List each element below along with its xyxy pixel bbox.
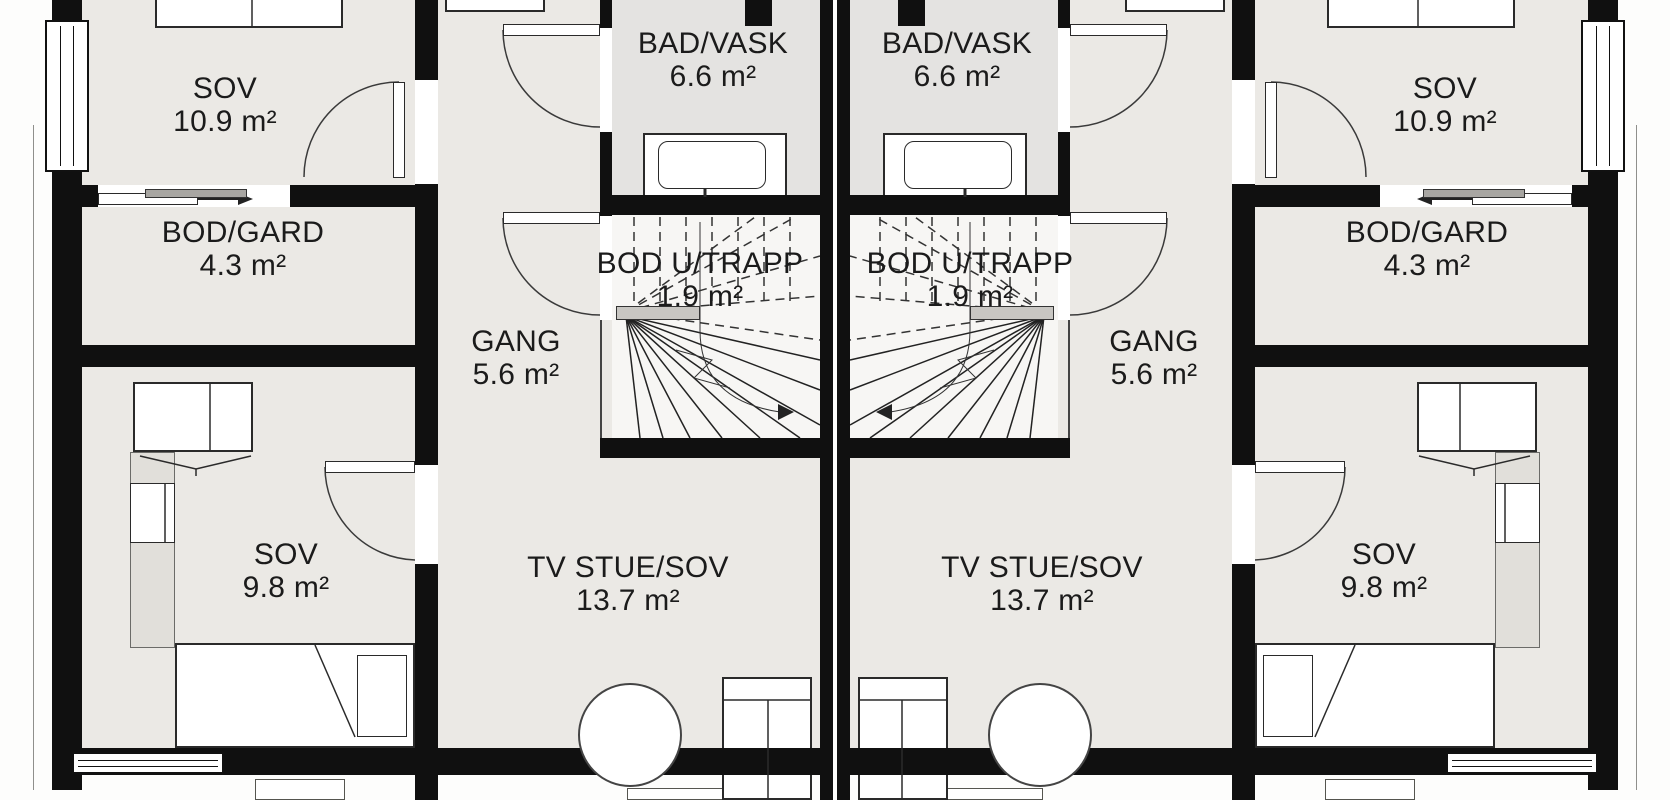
door-leaf (1255, 461, 1345, 473)
floor-plan: SOV 10.9 m² BOD/GARD 4.3 m² BAD/VASK 6.6… (0, 0, 1670, 800)
room-label-sov-top: SOV 10.9 m² (1393, 72, 1497, 138)
room-name: BOD/GARD (162, 216, 324, 249)
room-name: BOD U/TRAPP (867, 247, 1074, 280)
room-area: 13.7 m² (941, 584, 1143, 617)
room-label-bad-vask: BAD/VASK 6.6 m² (638, 27, 788, 93)
room-label-tv-stue: TV STUE/SOV 13.7 m² (527, 551, 729, 617)
room-area: 6.6 m² (882, 60, 1032, 93)
room-label-bod-gard: BOD/GARD 4.3 m² (1346, 216, 1508, 282)
room-name: SOV (1341, 538, 1428, 571)
room-label-bod-u-trapp: BOD U/TRAPP 1.9 m² (597, 247, 804, 313)
room-area: 4.3 m² (162, 249, 324, 282)
room-area: 5.6 m² (471, 358, 561, 391)
blanket-fold-line (1315, 645, 1355, 737)
room-area: 5.6 m² (1109, 358, 1199, 391)
room-area: 9.8 m² (1341, 571, 1428, 604)
furniture-detail-graphics (0, 0, 835, 800)
room-label-sov-top: SOV 10.9 m² (173, 72, 277, 138)
room-label-bod-u-trapp: BOD U/TRAPP 1.9 m² (867, 247, 1074, 313)
room-label-bad-vask: BAD/VASK 6.6 m² (882, 27, 1032, 93)
room-label-bod-gard: BOD/GARD 4.3 m² (162, 216, 324, 282)
furniture-detail-graphics (835, 0, 1670, 800)
room-area: 4.3 m² (1346, 249, 1508, 282)
wardrobe-hanger-symbol (1419, 456, 1530, 469)
blanket-fold-line (315, 645, 355, 737)
room-name: BAD/VASK (638, 27, 788, 60)
room-name: GANG (471, 325, 561, 358)
wardrobe-hanger-symbol (140, 456, 251, 469)
room-name: BAD/VASK (882, 27, 1032, 60)
room-label-tv-stue: TV STUE/SOV 13.7 m² (941, 551, 1143, 617)
door-leaf (503, 212, 600, 224)
room-name: TV STUE/SOV (941, 551, 1143, 584)
room-name: GANG (1109, 325, 1199, 358)
room-name: BOD/GARD (1346, 216, 1508, 249)
room-name: SOV (1393, 72, 1497, 105)
room-name: SOV (243, 538, 330, 571)
room-label-sov-bottom: SOV 9.8 m² (243, 538, 330, 604)
room-area: 9.8 m² (243, 571, 330, 604)
door-leaf (1070, 212, 1167, 224)
round-table (989, 684, 1091, 786)
unit-right: SOV 10.9 m² BOD/GARD 4.3 m² BAD/VASK 6.6… (835, 0, 1670, 800)
unit-left: SOV 10.9 m² BOD/GARD 4.3 m² BAD/VASK 6.6… (0, 0, 835, 800)
door-leaf (325, 461, 415, 473)
room-name: SOV (173, 72, 277, 105)
room-name: BOD U/TRAPP (597, 247, 804, 280)
room-area: 10.9 m² (1393, 105, 1497, 138)
room-area: 13.7 m² (527, 584, 729, 617)
room-area: 1.9 m² (867, 280, 1074, 313)
sliding-door-track (145, 189, 247, 198)
room-area: 6.6 m² (638, 60, 788, 93)
sliding-door-track (1423, 189, 1525, 198)
room-label-sov-bottom: SOV 9.8 m² (1341, 538, 1428, 604)
room-area: 1.9 m² (597, 280, 804, 313)
room-name: TV STUE/SOV (527, 551, 729, 584)
room-label-gang: GANG 5.6 m² (1109, 325, 1199, 391)
room-label-gang: GANG 5.6 m² (471, 325, 561, 391)
door-leaf (1265, 82, 1277, 178)
door-leaf (1070, 24, 1167, 36)
door-leaf (393, 82, 405, 178)
round-table (579, 684, 681, 786)
door-leaf (503, 24, 600, 36)
room-area: 10.9 m² (173, 105, 277, 138)
